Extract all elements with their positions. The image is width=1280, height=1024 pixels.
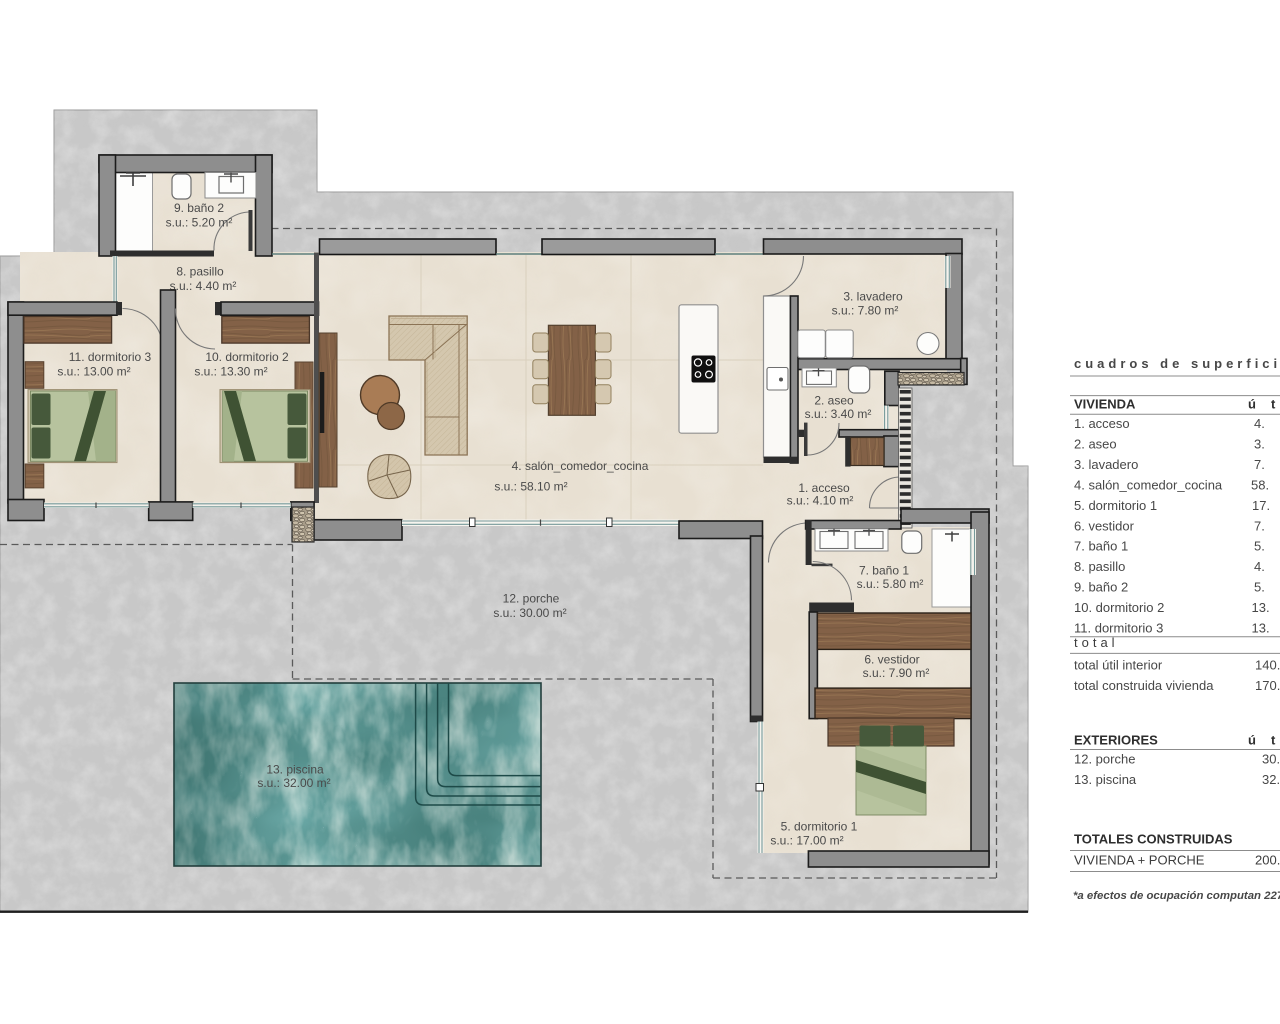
svg-text:170.: 170. [1255,678,1280,693]
svg-text:3. lavadero: 3. lavadero [1074,457,1138,472]
svg-text:1. acceso: 1. acceso [1074,416,1130,431]
svg-text:2. aseo: 2. aseo [814,393,854,407]
svg-text:5. dormitorio 1: 5. dormitorio 1 [781,819,858,833]
svg-text:s.u.: 32.00 m²: s.u.: 32.00 m² [257,776,330,790]
svg-text:6. vestidor: 6. vestidor [1074,518,1135,533]
svg-text:3. lavadero: 3. lavadero [843,289,903,303]
svg-text:7. baño 1: 7. baño 1 [859,563,909,577]
svg-text:VIVIENDA: VIVIENDA [1074,397,1136,412]
svg-text:4.: 4. [1254,559,1265,574]
svg-text:6. vestidor: 6. vestidor [864,652,919,666]
svg-text:s.u.: 13.00 m²: s.u.: 13.00 m² [57,365,130,379]
svg-text:8. pasillo: 8. pasillo [176,265,224,279]
svg-text:9. baño 2: 9. baño 2 [174,201,224,215]
svg-text:12. porche: 12. porche [503,591,560,605]
svg-text:*a efectos de ocupación comput: *a efectos de ocupación computan 227. [1073,890,1280,902]
svg-text:ú: ú [1248,733,1256,748]
svg-text:58.: 58. [1251,478,1269,493]
svg-text:s.u.: 3.40 m²: s.u.: 3.40 m² [805,407,872,421]
svg-text:VIVIENDA + PORCHE: VIVIENDA + PORCHE [1074,853,1205,868]
svg-text:s.u.: 5.20 m²: s.u.: 5.20 m² [166,216,233,230]
svg-text:30.: 30. [1262,751,1280,766]
svg-text:cuadros de superficies: cuadros de superficies [1074,356,1280,371]
svg-text:32.: 32. [1262,772,1280,787]
svg-text:5.: 5. [1254,580,1265,595]
svg-text:12. porche: 12. porche [1074,751,1135,766]
svg-text:3.: 3. [1254,437,1265,452]
svg-text:s.u.: 5.80 m²: s.u.: 5.80 m² [857,577,924,591]
svg-text:7.: 7. [1254,518,1265,533]
svg-text:s.u.: 7.80 m²: s.u.: 7.80 m² [832,303,899,317]
svg-text:7.: 7. [1254,457,1265,472]
svg-text:2. aseo: 2. aseo [1074,437,1117,452]
svg-text:4. salón_comedor_cocina: 4. salón_comedor_cocina [512,459,649,473]
svg-text:s.u.: 7.90 m²: s.u.: 7.90 m² [863,666,930,680]
svg-text:TOTALES CONSTRUIDAS: TOTALES CONSTRUIDAS [1074,832,1233,847]
svg-text:13.: 13. [1252,600,1270,615]
svg-text:10. dormitorio 2: 10. dormitorio 2 [1074,600,1164,615]
svg-text:17.: 17. [1252,498,1270,513]
svg-text:t: t [1271,397,1276,412]
svg-text:8. pasillo: 8. pasillo [1074,559,1125,574]
svg-text:total útil interior: total útil interior [1074,657,1163,672]
svg-text:9. baño 2: 9. baño 2 [1074,580,1128,595]
svg-text:ú: ú [1248,397,1256,412]
svg-text:s.u.: 17.00 m²: s.u.: 17.00 m² [770,833,843,847]
svg-text:s.u.: 30.00 m²: s.u.: 30.00 m² [493,606,566,620]
svg-text:140.: 140. [1255,657,1280,672]
svg-text:200.: 200. [1255,853,1280,868]
svg-text:s.u.: 4.40 m²: s.u.: 4.40 m² [170,279,237,293]
svg-text:10. dormitorio 2: 10. dormitorio 2 [205,350,289,364]
svg-text:EXTERIORES: EXTERIORES [1074,733,1158,748]
svg-text:4.: 4. [1254,416,1265,431]
svg-text:s.u.: 4.10 m²: s.u.: 4.10 m² [787,493,854,507]
svg-text:total construida vivienda: total construida vivienda [1074,678,1214,693]
svg-text:s.u.: 58.10 m²: s.u.: 58.10 m² [494,480,567,494]
svg-text:11. dormitorio 3: 11. dormitorio 3 [1074,620,1163,635]
svg-text:13. piscina: 13. piscina [266,762,324,776]
svg-text:total: total [1074,635,1119,650]
svg-text:7. baño 1: 7. baño 1 [1074,539,1128,554]
svg-text:11. dormitorio 3: 11. dormitorio 3 [69,350,152,364]
svg-text:13. piscina: 13. piscina [1074,772,1137,787]
svg-text:5.: 5. [1254,539,1265,554]
svg-text:5. dormitorio 1: 5. dormitorio 1 [1074,498,1157,513]
svg-text:s.u.: 13.30 m²: s.u.: 13.30 m² [194,365,267,379]
svg-text:13.: 13. [1252,620,1270,635]
svg-text:t: t [1271,733,1276,748]
svg-text:4. salón_comedor_cocina: 4. salón_comedor_cocina [1074,478,1223,493]
